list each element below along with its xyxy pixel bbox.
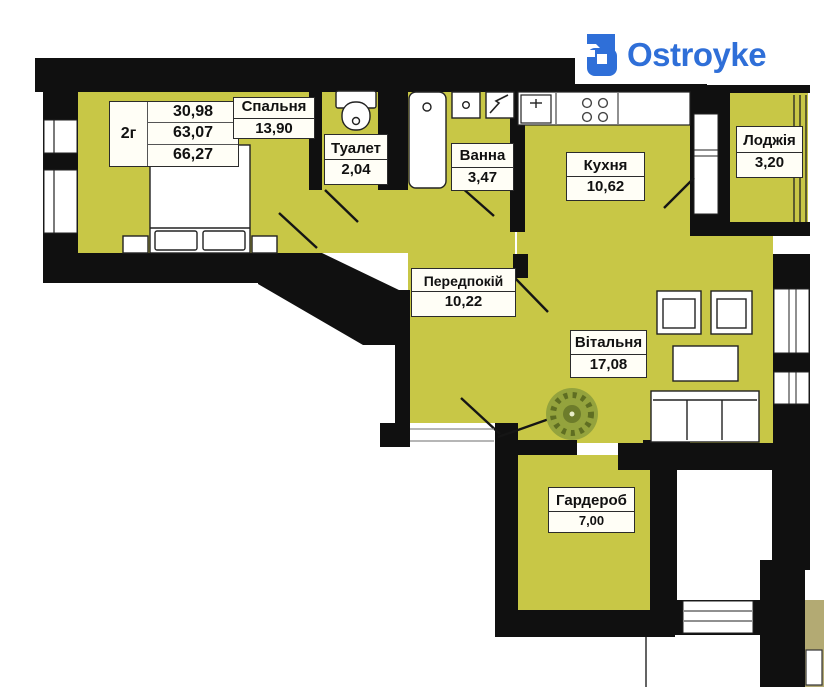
summary-value: 63,07 bbox=[148, 123, 238, 144]
wall bbox=[518, 440, 577, 455]
logo-icon bbox=[583, 32, 619, 78]
entrance-door bbox=[410, 429, 494, 441]
wall bbox=[643, 440, 690, 455]
logo-text: Ostroyke bbox=[627, 36, 766, 74]
wall bbox=[690, 92, 730, 232]
logo: Ostroyke bbox=[575, 26, 787, 84]
wall bbox=[650, 600, 765, 635]
room-label-wardrobe: Гардероб 7,00 bbox=[548, 487, 635, 533]
room-area: 7,00 bbox=[549, 512, 634, 530]
room-name: Ванна bbox=[452, 146, 513, 167]
wall bbox=[380, 423, 410, 447]
room-name: Туалет bbox=[325, 139, 387, 160]
room-label-toilet: Туалет 2,04 bbox=[324, 134, 388, 185]
summary-table: 2г 30,98 63,07 66,27 bbox=[109, 101, 239, 167]
room-label-bath: Ванна 3,47 bbox=[451, 143, 514, 191]
room-name: Передпокій bbox=[412, 272, 515, 292]
wall bbox=[760, 560, 805, 687]
wall bbox=[43, 253, 258, 283]
wall bbox=[772, 470, 810, 570]
wall bbox=[650, 455, 677, 600]
room-nook-floor bbox=[309, 190, 409, 253]
summary-value: 30,98 bbox=[148, 102, 238, 123]
room-area: 10,62 bbox=[567, 177, 644, 197]
wall bbox=[495, 423, 518, 637]
room-name: Вітальня bbox=[571, 333, 646, 354]
floor-plan: 2г 30,98 63,07 66,27 Спальня 13,90 Туале… bbox=[0, 0, 824, 687]
room-name: Кухня bbox=[567, 156, 644, 177]
adjacent-apartment-floor bbox=[805, 600, 824, 687]
room-name: Спальня bbox=[234, 97, 314, 118]
room-label-loggia: Лоджія 3,20 bbox=[736, 126, 803, 178]
room-label-kitchen: Кухня 10,62 bbox=[566, 152, 645, 201]
wall bbox=[43, 92, 78, 253]
wall bbox=[495, 610, 675, 637]
room-area: 13,90 bbox=[234, 119, 314, 139]
room-label-living: Вітальня 17,08 bbox=[570, 330, 647, 378]
room-label-bedroom: Спальня 13,90 bbox=[233, 97, 315, 139]
room-area: 2,04 bbox=[325, 160, 387, 180]
room-living-floor-upper-right bbox=[690, 236, 773, 254]
room-label-hallway: Передпокій 10,22 bbox=[411, 268, 516, 317]
summary-value: 66,27 bbox=[148, 145, 238, 166]
room-area: 3,47 bbox=[452, 168, 513, 188]
room-name: Гардероб bbox=[549, 491, 634, 512]
wall bbox=[690, 222, 810, 236]
room-area: 10,22 bbox=[412, 292, 515, 312]
room-area: 3,20 bbox=[737, 153, 802, 173]
room-name: Лоджія bbox=[737, 131, 802, 152]
apartment-type: 2г bbox=[110, 102, 148, 166]
wall bbox=[258, 253, 410, 345]
room-area: 17,08 bbox=[571, 355, 646, 375]
